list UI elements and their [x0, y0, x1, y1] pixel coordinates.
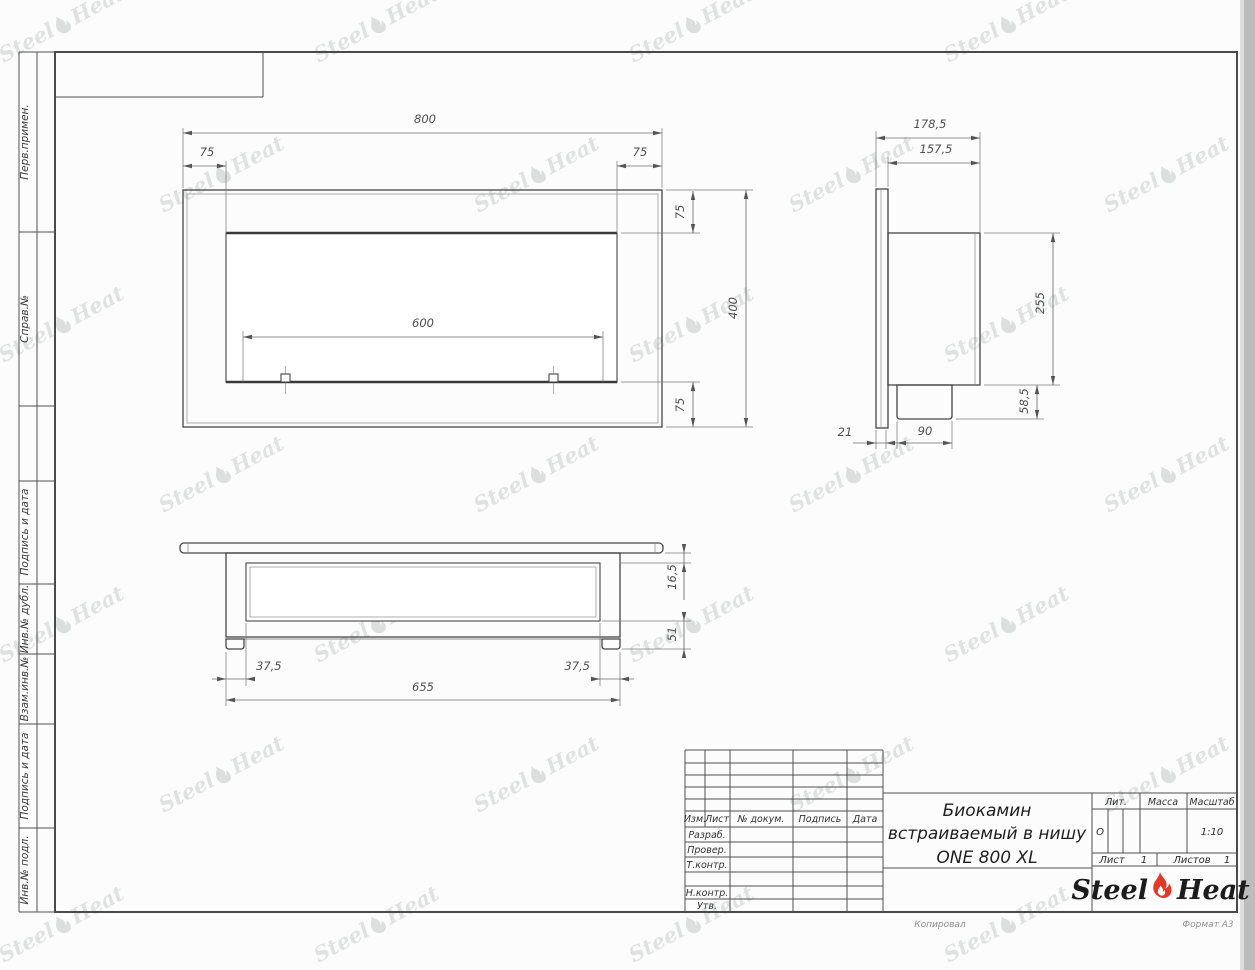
- front-opening: [226, 233, 617, 382]
- watermark: SteelHeat: [309, 880, 443, 967]
- svg-text:Heat: Heat: [855, 730, 918, 779]
- svg-text:Heat: Heat: [540, 130, 603, 179]
- tb-role-razrab: Разраб.: [688, 830, 725, 841]
- svg-text:Steel: Steel: [784, 167, 848, 217]
- drawing-frame: [55, 52, 1237, 912]
- footer-format-label: Формат А3: [1182, 920, 1234, 930]
- svg-text:Heat: Heat: [225, 130, 288, 179]
- svg-text:Steel: Steel: [154, 767, 218, 817]
- svg-text:Steel: Steel: [309, 917, 373, 967]
- bottom-foot-right: [602, 639, 620, 649]
- svg-text:Steel: Steel: [624, 917, 688, 967]
- tb-role-prover: Провер.: [687, 845, 726, 856]
- bottom-front-plate: [180, 543, 663, 553]
- dim-side-flange-thickness: 21: [838, 425, 853, 439]
- tb-sheets-value: 1: [1224, 855, 1230, 866]
- svg-text:Steel: Steel: [309, 617, 373, 667]
- page-edge-strip: [1244, 0, 1255, 970]
- front-burner-tab-right: [549, 374, 558, 382]
- svg-text:Steel: Steel: [469, 167, 533, 217]
- svg-text:Heat: Heat: [65, 880, 128, 929]
- watermark: SteelHeat: [469, 430, 603, 517]
- steelheat-logo: Steel Heat: [1071, 872, 1250, 906]
- watermark: SteelHeat: [154, 730, 288, 817]
- tb-sheet-label: Лист: [1098, 855, 1126, 866]
- side-extension-lines: [876, 131, 1060, 449]
- dim-front-offset-right: 75: [633, 145, 648, 159]
- dim-front-offset-left: 75: [200, 145, 215, 159]
- front-burner-tab-left: [281, 374, 290, 382]
- svg-text:Heat: Heat: [540, 430, 603, 479]
- watermark: SteelHeat: [1099, 130, 1233, 217]
- svg-text:Heat: Heat: [695, 0, 758, 29]
- watermark: SteelHeat: [939, 580, 1073, 667]
- svg-text:Heat: Heat: [1170, 130, 1233, 179]
- logo-word-steel: Steel: [1071, 875, 1148, 906]
- dim-bottom-plate-thickness: 16,5: [665, 564, 679, 590]
- margin-label-perv-primen: Перв.примен.: [19, 104, 31, 179]
- margin-label-podpis-data-1: Подпись и дата: [19, 489, 31, 576]
- drawing-canvas: SteelHeatSteelHeatSteelHeatSteelHeatStee…: [0, 0, 1255, 970]
- bottom-foot-left: [226, 639, 244, 649]
- svg-text:Steel: Steel: [469, 467, 533, 517]
- left-margin-column: Перв.примен. Справ.№ Подпись и дата Инв.…: [19, 52, 55, 912]
- svg-text:Heat: Heat: [1010, 880, 1073, 929]
- tb-sheets-label: Листов: [1172, 855, 1210, 866]
- svg-text:Heat: Heat: [695, 580, 758, 629]
- svg-text:Steel: Steel: [1099, 467, 1163, 517]
- tb-role-tkontr: Т.контр.: [686, 860, 727, 871]
- bottom-view: 16,5 51 37,5 37,5 655: [180, 543, 691, 706]
- svg-text:Heat: Heat: [380, 0, 443, 29]
- tb-sheet-value: 1: [1141, 855, 1147, 866]
- watermark: SteelHeat: [624, 0, 758, 67]
- watermark-layer: SteelHeatSteelHeatSteelHeatSteelHeatStee…: [0, 0, 1233, 967]
- svg-text:Heat: Heat: [225, 430, 288, 479]
- watermark: SteelHeat: [624, 280, 758, 367]
- dim-bottom-body-width: 655: [412, 680, 434, 694]
- watermark: SteelHeat: [1099, 430, 1233, 517]
- tb-lit-label: Лит.: [1104, 797, 1127, 808]
- dim-front-width: 800: [414, 112, 436, 126]
- svg-text:Heat: Heat: [1170, 430, 1233, 479]
- svg-text:Steel: Steel: [939, 617, 1003, 667]
- watermark: SteelHeat: [939, 0, 1073, 67]
- dim-front-offset-top: 75: [673, 205, 687, 220]
- tb-col-list: Лист: [704, 814, 730, 825]
- svg-text:Steel: Steel: [939, 317, 1003, 367]
- svg-text:Heat: Heat: [1010, 580, 1073, 629]
- watermark: SteelHeat: [784, 130, 918, 217]
- doc-title-line2: встраиваемый в нишу: [888, 824, 1087, 844]
- svg-text:Steel: Steel: [309, 17, 373, 67]
- page-edge-shade: [1240, 0, 1244, 970]
- svg-text:Heat: Heat: [380, 880, 443, 929]
- svg-text:Heat: Heat: [225, 730, 288, 779]
- margin-label-inv-podl: Инв.№ подл.: [19, 835, 31, 904]
- svg-text:Steel: Steel: [0, 17, 59, 67]
- svg-text:Heat: Heat: [65, 280, 128, 329]
- svg-text:Heat: Heat: [1010, 0, 1073, 29]
- svg-text:Heat: Heat: [540, 730, 603, 779]
- doc-title-line3: ONE 800 XL: [936, 848, 1037, 868]
- svg-text:Steel: Steel: [624, 17, 688, 67]
- dim-side-body-depth: 157,5: [920, 142, 953, 156]
- watermark: SteelHeat: [154, 130, 288, 217]
- watermark: SteelHeat: [469, 730, 603, 817]
- svg-text:Steel: Steel: [784, 467, 848, 517]
- watermark: SteelHeat: [309, 0, 443, 67]
- dim-bottom-offset-left: 37,5: [256, 659, 282, 673]
- tb-col-podpis: Подпись: [799, 814, 842, 825]
- margin-label-vzam-inv: Взам.инв.№: [19, 657, 31, 722]
- dim-side-box-height: 58,5: [1017, 388, 1031, 414]
- dim-side-body-height: 255: [1033, 292, 1047, 314]
- side-body: [888, 233, 980, 385]
- footer-copied-label: Копировал: [914, 920, 966, 930]
- tb-scale-label: Масштаб: [1189, 797, 1234, 808]
- doc-title-line1: Биокамин: [943, 801, 1032, 821]
- margin-label-sprav-no: Справ.№: [19, 295, 31, 343]
- top-left-table: [55, 52, 263, 97]
- svg-text:Steel: Steel: [939, 17, 1003, 67]
- tb-mass-label: Масса: [1148, 797, 1178, 808]
- bottom-opening-outer: [246, 563, 600, 621]
- tb-role-utv: Утв.: [697, 901, 717, 912]
- dim-front-burner-width: 600: [412, 316, 434, 330]
- logo-word-heat: Heat: [1176, 875, 1250, 906]
- tb-role-nkontr: Н.контр.: [686, 888, 729, 899]
- svg-text:Heat: Heat: [65, 0, 128, 29]
- svg-text:Steel: Steel: [1099, 167, 1163, 217]
- tb-col-izm: Изм.: [684, 814, 706, 825]
- svg-text:Steel: Steel: [0, 917, 59, 967]
- dim-bottom-inner-depth: 51: [665, 627, 679, 642]
- watermark: SteelHeat: [624, 580, 758, 667]
- margin-label-inv-dubl: Инв.№ дубл.: [19, 585, 31, 654]
- side-bottom-box: [897, 385, 952, 419]
- svg-text:Steel: Steel: [469, 767, 533, 817]
- svg-text:Steel: Steel: [1099, 767, 1163, 817]
- svg-text:Steel: Steel: [154, 167, 218, 217]
- watermark: SteelHeat: [784, 730, 918, 817]
- tb-lit-value: О: [1096, 827, 1104, 838]
- dim-bottom-offset-right: 37,5: [564, 659, 590, 673]
- tb-scale-value: 1:10: [1201, 827, 1223, 838]
- svg-text:Heat: Heat: [1170, 730, 1233, 779]
- margin-label-podpis-data-2: Подпись и дата: [19, 733, 31, 820]
- side-front-flange: [876, 189, 888, 428]
- svg-text:Steel: Steel: [154, 467, 218, 517]
- dim-front-height: 400: [726, 297, 740, 319]
- watermark: SteelHeat: [469, 130, 603, 217]
- dim-side-box-depth: 90: [918, 424, 933, 438]
- tb-col-ndokum: № докум.: [737, 814, 785, 825]
- tb-col-data: Дата: [852, 814, 878, 825]
- dim-front-offset-bottom: 75: [673, 398, 687, 413]
- dim-side-total-depth: 178,5: [914, 117, 947, 131]
- svg-text:Steel: Steel: [624, 317, 688, 367]
- drawing-sheet: SteelHeatSteelHeatSteelHeatSteelHeatStee…: [0, 0, 1255, 970]
- watermark: SteelHeat: [154, 430, 288, 517]
- svg-text:Heat: Heat: [65, 580, 128, 629]
- svg-text:Heat: Heat: [855, 430, 918, 479]
